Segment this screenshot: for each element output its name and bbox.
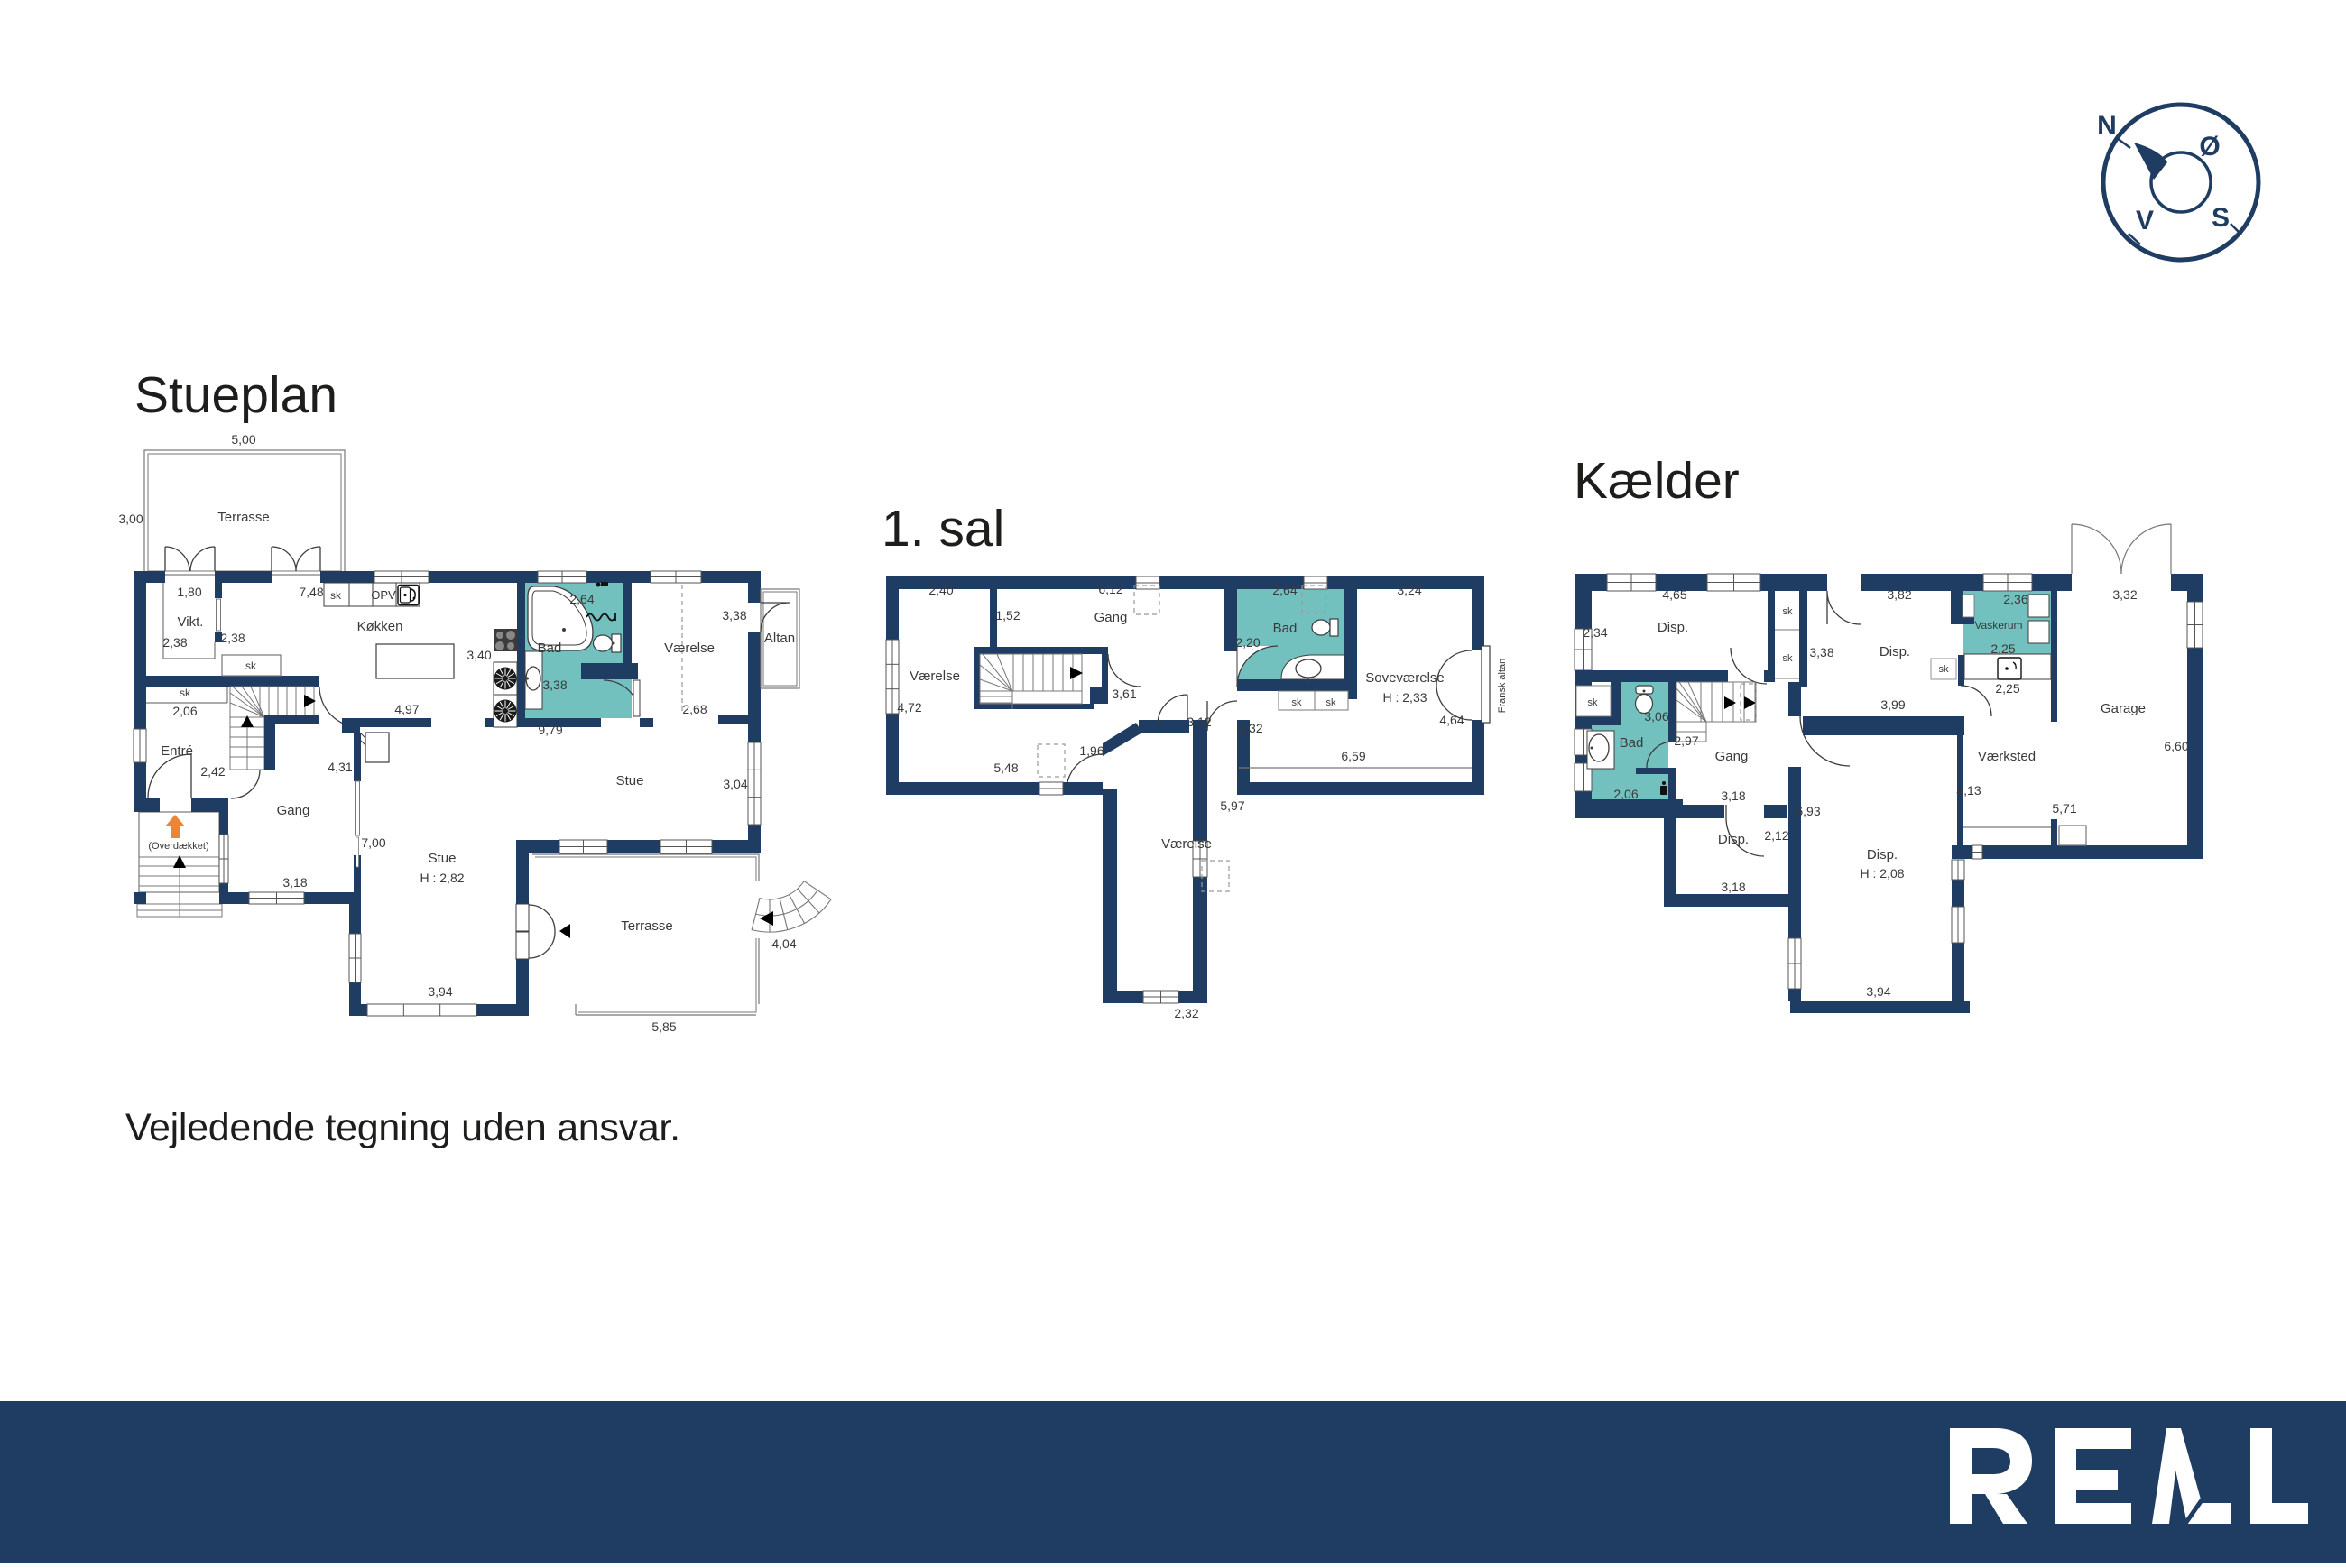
svg-text:4,64: 4,64 xyxy=(1439,713,1464,727)
svg-text:3,32: 3,32 xyxy=(2112,587,2137,602)
svg-text:Vikt.: Vikt. xyxy=(178,614,204,630)
svg-text:Værelse: Værelse xyxy=(1161,836,1212,852)
svg-text:1,80: 1,80 xyxy=(177,585,201,599)
svg-text:Gang: Gang xyxy=(1715,749,1749,764)
svg-text:2,20: 2,20 xyxy=(1235,635,1260,650)
svg-text:Bad: Bad xyxy=(538,641,562,656)
svg-text:V: V xyxy=(2136,206,2154,235)
svg-text:(Overdækket): (Overdækket) xyxy=(148,841,208,852)
svg-text:Vaskerum: Vaskerum xyxy=(1974,619,2022,632)
svg-text:3,18: 3,18 xyxy=(282,875,307,890)
svg-text:3,38: 3,38 xyxy=(1809,645,1833,659)
svg-text:Bad: Bad xyxy=(1620,735,1644,751)
svg-text:Entré: Entré xyxy=(161,743,193,759)
svg-text:2,68: 2,68 xyxy=(682,702,707,716)
svg-text:2,32: 2,32 xyxy=(1174,1006,1198,1020)
svg-text:Stue: Stue xyxy=(616,773,644,789)
svg-text:Køkken: Køkken xyxy=(357,619,403,634)
svg-text:1. sal: 1. sal xyxy=(882,500,1004,558)
svg-text:2,25: 2,25 xyxy=(1990,641,2015,656)
svg-text:7,48: 7,48 xyxy=(299,585,323,599)
svg-text:1,96: 1,96 xyxy=(1079,743,1104,758)
svg-text:6,60: 6,60 xyxy=(2164,739,2188,753)
svg-text:3,61: 3,61 xyxy=(1112,687,1136,701)
svg-text:3,12: 3,12 xyxy=(1187,715,1211,729)
svg-text:3,99: 3,99 xyxy=(1880,697,1905,712)
svg-text:2,25: 2,25 xyxy=(1995,681,2019,696)
svg-text:Disp.: Disp. xyxy=(1718,832,1749,847)
svg-text:H : 2,08: H : 2,08 xyxy=(1860,866,1904,881)
svg-text:Ø: Ø xyxy=(2199,132,2220,161)
svg-text:sk: sk xyxy=(1783,606,1794,617)
svg-text:Kælder: Kælder xyxy=(1574,452,1740,510)
svg-text:2,42: 2,42 xyxy=(200,764,225,779)
svg-text:Disp.: Disp. xyxy=(1880,644,1910,659)
svg-text:2,64: 2,64 xyxy=(569,592,594,606)
svg-text:4,04: 4,04 xyxy=(771,936,796,951)
svg-text:Stueplan: Stueplan xyxy=(134,366,337,424)
svg-text:2,06: 2,06 xyxy=(1613,787,1638,801)
svg-text:2,12: 2,12 xyxy=(1764,828,1788,843)
svg-text:5,85: 5,85 xyxy=(651,1019,676,1034)
svg-text:7,00: 7,00 xyxy=(361,835,385,850)
svg-text:4,65: 4,65 xyxy=(1662,587,1686,602)
svg-text:4,31: 4,31 xyxy=(328,760,352,774)
svg-text:Bad: Bad xyxy=(1273,621,1298,636)
svg-text:3,18: 3,18 xyxy=(1721,789,1745,803)
svg-text:2,38: 2,38 xyxy=(162,635,187,650)
svg-text:5,00: 5,00 xyxy=(231,432,255,447)
svg-text:H : 2,33: H : 2,33 xyxy=(1382,690,1427,705)
svg-text:sk: sk xyxy=(1783,653,1794,664)
svg-text:6,93: 6,93 xyxy=(1796,804,1820,818)
svg-text:2,36: 2,36 xyxy=(2003,592,2027,606)
svg-text:Værelse: Værelse xyxy=(910,669,960,684)
svg-text:sk: sk xyxy=(330,589,342,602)
svg-text:3,38: 3,38 xyxy=(722,608,746,623)
svg-text:sk: sk xyxy=(1939,664,1950,675)
svg-text:Altan: Altan xyxy=(764,631,795,646)
svg-text:Værelse: Værelse xyxy=(664,641,715,656)
svg-text:4,72: 4,72 xyxy=(897,700,921,715)
svg-text:1,52: 1,52 xyxy=(995,608,1020,623)
svg-text:3,40: 3,40 xyxy=(466,648,491,662)
svg-text:3,06: 3,06 xyxy=(1644,709,1668,724)
svg-text:Gang: Gang xyxy=(277,803,310,818)
svg-text:2,97: 2,97 xyxy=(1674,733,1698,748)
svg-text:Garage: Garage xyxy=(2101,701,2146,716)
svg-text:3,24: 3,24 xyxy=(1397,583,1421,597)
svg-text:6,12: 6,12 xyxy=(1098,582,1122,596)
svg-text:Gang: Gang xyxy=(1094,610,1128,625)
svg-text:S: S xyxy=(2212,203,2230,233)
svg-text:sk: sk xyxy=(1588,697,1599,708)
svg-text:sk: sk xyxy=(245,659,257,672)
svg-text:9,79: 9,79 xyxy=(538,723,562,737)
svg-text:sk: sk xyxy=(1292,697,1303,708)
svg-text:2,40: 2,40 xyxy=(928,583,953,597)
svg-text:Fransk altan: Fransk altan xyxy=(1497,659,1508,714)
svg-text:2,06: 2,06 xyxy=(172,704,197,718)
svg-text:6,59: 6,59 xyxy=(1341,749,1365,763)
svg-text:Værksted: Værksted xyxy=(1978,749,2036,764)
svg-text:Terrasse: Terrasse xyxy=(217,510,270,525)
svg-text:4,97: 4,97 xyxy=(394,702,419,716)
svg-text:3,00: 3,00 xyxy=(118,512,143,526)
svg-text:N: N xyxy=(2097,111,2117,141)
svg-text:3,18: 3,18 xyxy=(1721,880,1745,894)
svg-text:3,38: 3,38 xyxy=(542,678,567,692)
svg-text:2,64: 2,64 xyxy=(1272,583,1297,597)
svg-text:Vejledende tegning uden ansvar: Vejledende tegning uden ansvar. xyxy=(125,1106,680,1149)
svg-text:Disp.: Disp. xyxy=(1867,847,1898,862)
svg-text:5,97: 5,97 xyxy=(1220,798,1244,813)
svg-text:5,48: 5,48 xyxy=(993,761,1018,775)
svg-text:H : 2,82: H : 2,82 xyxy=(420,871,464,885)
svg-text:sk: sk xyxy=(1326,697,1337,708)
svg-text:sk: sk xyxy=(180,687,191,699)
svg-text:3,04: 3,04 xyxy=(723,777,747,791)
svg-text:OPV: OPV xyxy=(371,588,396,602)
svg-text:3,82: 3,82 xyxy=(1887,587,1911,602)
svg-text:Terrasse: Terrasse xyxy=(621,918,673,934)
svg-text:2,32: 2,32 xyxy=(1238,721,1262,735)
svg-text:2,38: 2,38 xyxy=(220,631,245,645)
svg-text:5,71: 5,71 xyxy=(2052,801,2076,816)
svg-text:4,13: 4,13 xyxy=(1956,783,1981,798)
svg-text:2,34: 2,34 xyxy=(1583,625,1607,640)
svg-text:Stue: Stue xyxy=(429,851,457,866)
svg-text:Soveværelse: Soveværelse xyxy=(1365,670,1445,686)
svg-text:Disp.: Disp. xyxy=(1658,620,1688,635)
svg-text:3,94: 3,94 xyxy=(1866,984,1890,999)
svg-text:3,94: 3,94 xyxy=(428,984,452,999)
